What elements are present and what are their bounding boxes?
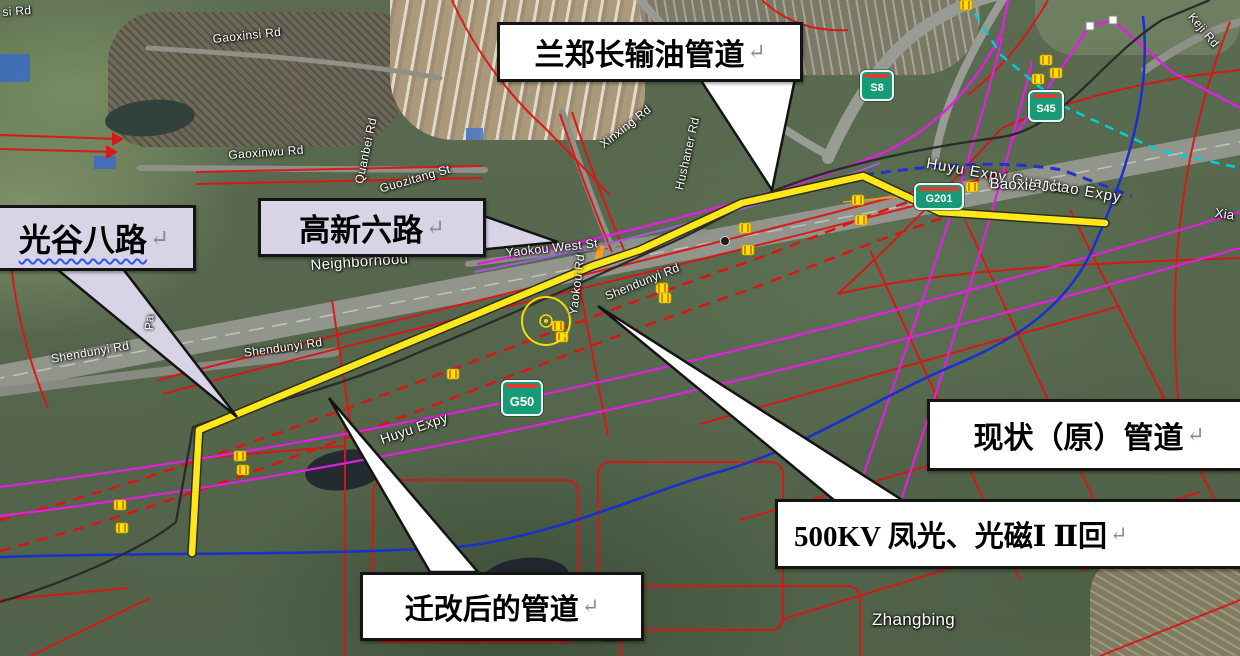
callout-relocated-pipeline: 迁改后的管道↵ (360, 572, 644, 641)
route-shield-s45: S45 (1028, 90, 1064, 122)
route-shield-s8: S8 (860, 70, 894, 101)
road-label-xia-partial: Xia (1214, 205, 1236, 223)
callout-500kv-power-lines: 500KV 凤光、光磁Ⅰ Ⅱ回↵ (775, 499, 1240, 569)
road-label-si-partial: si Rd (2, 3, 32, 19)
callout-text: 迁改后的管道 (405, 586, 579, 628)
return-mark-icon: ↵ (1186, 423, 1204, 448)
satellite-map-canvas[interactable]: Gaoxinsi Rd si Rd Gaoxinwu Rd Quanbei Rd… (0, 0, 1240, 656)
route-shield-g201: G201 (914, 183, 964, 210)
return-mark-icon: ↵ (747, 40, 765, 65)
callout-text: 现状（原）管道 (973, 413, 1183, 457)
route-shield-g50: G50 (501, 380, 543, 416)
pointer-guanggu8 (52, 265, 237, 417)
return-mark-icon: ↵ (150, 225, 169, 252)
callout-text: 光谷八路 (19, 215, 147, 261)
callout-lanzhengchang-pipeline: 兰郑长输油管道↵ (497, 22, 803, 82)
return-mark-icon: ↵ (1110, 522, 1128, 547)
return-mark-icon: ↵ (582, 594, 600, 619)
callout-guanggu-8th-road: 光谷八路↵ (0, 205, 196, 271)
return-mark-icon: ↵ (426, 215, 445, 241)
callout-text: 高新六路 (299, 205, 423, 250)
place-label-zhangbing: Zhangbing (872, 610, 955, 630)
callout-current-original-pipeline: 现状（原）管道↵ (927, 399, 1240, 471)
callout-gaoxin-6th-road: 高新六路↵ (258, 198, 486, 257)
road-label-pa-partial: Pa (142, 315, 157, 331)
pointer-lanzhengchang (700, 79, 795, 190)
callout-text: 兰郑长输油管道 (534, 30, 744, 74)
pointer-500kv (598, 306, 910, 505)
callout-text: 500KV 凤光、光磁Ⅰ Ⅱ回 (794, 513, 1107, 555)
